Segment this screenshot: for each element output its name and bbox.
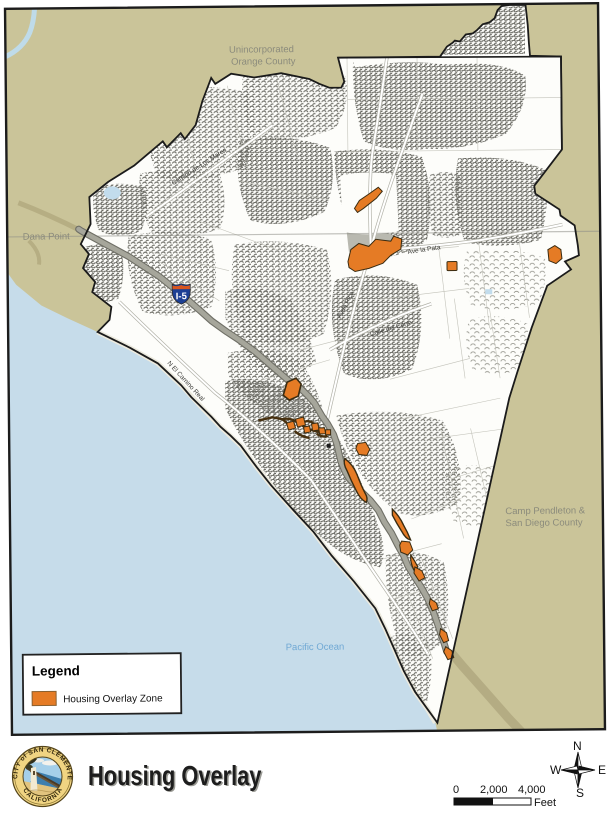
svg-text:Housing Overlay: Housing Overlay bbox=[88, 760, 261, 791]
svg-text:0: 0 bbox=[453, 784, 459, 796]
svg-text:Orange County: Orange County bbox=[231, 56, 296, 68]
svg-text:W: W bbox=[550, 763, 562, 777]
svg-text:S: S bbox=[576, 786, 584, 800]
svg-text:E: E bbox=[598, 763, 606, 777]
svg-text:Dana Point: Dana Point bbox=[23, 231, 70, 242]
svg-text:San Diego County: San Diego County bbox=[505, 517, 582, 529]
svg-text:Feet: Feet bbox=[534, 797, 556, 809]
svg-text:Pacific Ocean: Pacific Ocean bbox=[286, 642, 345, 654]
svg-text:4,000: 4,000 bbox=[518, 784, 546, 796]
svg-text:2,000: 2,000 bbox=[480, 784, 508, 796]
svg-text:Unincorporated: Unincorporated bbox=[229, 44, 294, 56]
svg-text:I-5: I-5 bbox=[176, 291, 188, 302]
svg-text:N: N bbox=[573, 739, 582, 753]
svg-text:Housing Overlay Zone: Housing Overlay Zone bbox=[63, 693, 163, 705]
svg-text:Legend: Legend bbox=[32, 663, 80, 678]
svg-text:Camp Pendleton &: Camp Pendleton & bbox=[505, 505, 586, 517]
